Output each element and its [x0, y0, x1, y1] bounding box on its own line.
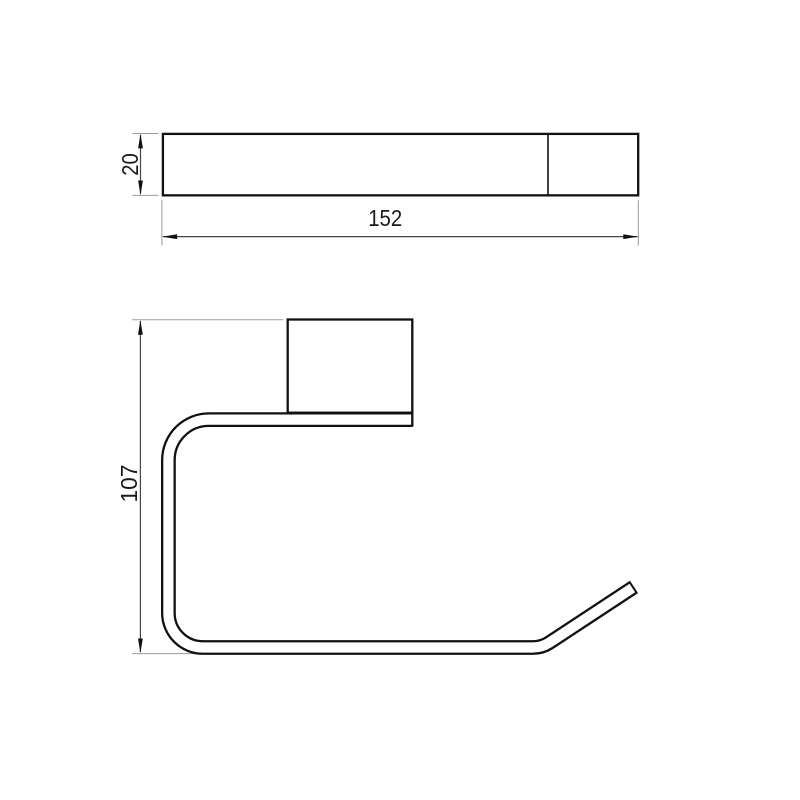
- svg-text:20: 20: [117, 153, 143, 176]
- svg-text:152: 152: [368, 205, 402, 231]
- svg-text:107: 107: [116, 465, 142, 503]
